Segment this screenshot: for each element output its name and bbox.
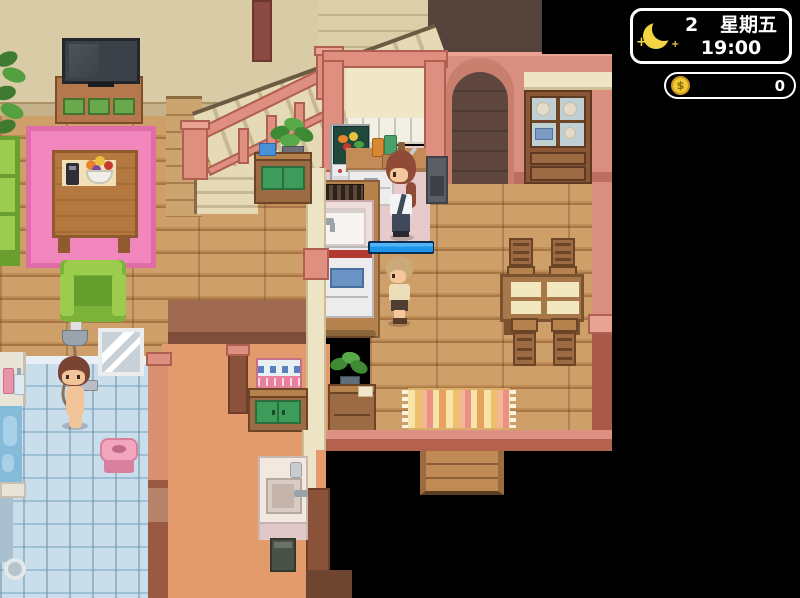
game-scene: + + 2 星期五 19:00 $ 0 <box>0 0 800 598</box>
placemat <box>547 282 579 297</box>
chair-back <box>551 238 575 266</box>
shirt <box>389 284 410 301</box>
cream-strip-salmon-block <box>303 248 329 280</box>
towel-pattern-blue <box>258 366 300 373</box>
dishes-blue <box>535 128 553 140</box>
table-shelf-line <box>334 414 370 416</box>
bathtub-rim <box>0 482 26 498</box>
cooking-progress-bar <box>368 241 434 254</box>
green-armchair[interactable] <box>60 260 126 322</box>
bathroom-wall-block <box>148 488 168 522</box>
south-wall-band <box>168 300 308 346</box>
character-mom-cooking[interactable] <box>384 148 420 242</box>
mirror[interactable] <box>98 328 144 376</box>
washbasin-vanity[interactable] <box>258 456 308 540</box>
oven-door <box>430 176 444 196</box>
soap-dispenser <box>290 462 302 478</box>
stair-post-bottom-cap <box>180 120 210 130</box>
plate <box>563 102 577 116</box>
nook-brown-pillar <box>306 488 330 572</box>
sink-basin <box>320 208 366 246</box>
door-divider <box>277 402 279 422</box>
couch-cushion <box>0 216 15 250</box>
leaf <box>0 100 26 122</box>
bathtub-side <box>0 498 13 562</box>
wall-post-cap <box>226 344 250 356</box>
crescent-moon-icon: + + <box>643 21 681 51</box>
cabinet-doors-green <box>255 400 301 424</box>
gold-coin-icon: $ <box>671 76 690 95</box>
tv-stand-drawer <box>63 98 85 115</box>
eye <box>66 375 69 379</box>
bath-stool[interactable] <box>100 438 138 474</box>
right-wall-dark-block <box>592 334 612 432</box>
veggie-orange <box>338 135 348 143</box>
floor-edge-shadow <box>326 439 612 451</box>
eye <box>392 274 395 278</box>
cream-wall-strip <box>306 168 326 450</box>
green-couch[interactable] <box>0 136 20 266</box>
stair-post-bottom <box>182 124 208 180</box>
bottle-pump <box>17 368 21 375</box>
leaf <box>0 84 17 102</box>
sparkle-icon: + <box>636 35 647 50</box>
couch-cushion <box>0 140 15 174</box>
armchair-arm <box>112 274 126 316</box>
stair-baluster <box>238 128 249 164</box>
chair-back <box>553 332 576 366</box>
leaf <box>0 65 27 86</box>
right-wall-corner-cap <box>588 314 614 334</box>
pants <box>392 214 410 232</box>
tv-screen-sheen <box>69 44 99 78</box>
rug-fringe <box>402 390 408 428</box>
water-highlight <box>3 416 17 446</box>
blue-book <box>259 143 276 156</box>
bathtub-water[interactable] <box>0 406 22 482</box>
potted-plant-corner <box>0 50 28 138</box>
towel-box <box>256 358 302 390</box>
side-table[interactable] <box>328 384 376 434</box>
shoes <box>393 318 407 324</box>
kitchen-back-wall <box>346 60 426 118</box>
dining-chair[interactable] <box>511 318 538 370</box>
couch-cushion <box>0 178 15 212</box>
chair-seat <box>511 318 538 332</box>
wall-trim-cream <box>524 72 614 90</box>
fruit <box>104 161 113 170</box>
oven-window <box>330 268 364 288</box>
tv-base <box>88 82 114 87</box>
plate <box>536 102 550 116</box>
leaf <box>348 358 369 377</box>
towel-cabinet[interactable] <box>248 388 308 432</box>
door-handle <box>282 410 285 415</box>
veggie-yellow <box>349 132 358 141</box>
cabinet-drawer-row <box>530 166 586 181</box>
sparkle-icon: + <box>671 39 679 50</box>
towel-dots <box>258 378 300 386</box>
dining-chair[interactable] <box>551 318 578 370</box>
tv-stand-drawer <box>88 98 110 115</box>
stove-top-band <box>322 250 372 258</box>
shoes <box>393 231 409 237</box>
unexplored-top-strip <box>542 0 612 54</box>
eye <box>393 172 396 177</box>
legs <box>69 412 82 428</box>
hud-weekday: 星期五 <box>720 14 777 36</box>
nook-dark-wood <box>306 570 352 598</box>
chair-back <box>509 238 533 266</box>
fruit-bowl[interactable] <box>84 156 116 188</box>
striped-rug <box>408 388 510 430</box>
floor-drain <box>4 558 26 580</box>
placemat <box>511 282 541 297</box>
wall-oven[interactable] <box>426 156 448 204</box>
soap-bottle-blue <box>14 374 25 395</box>
stove-drawer-line <box>326 296 368 298</box>
dining-table[interactable] <box>500 274 584 322</box>
basin-faucet <box>294 490 308 497</box>
hud-clock-panel: + + 2 星期五 19:00 <box>630 8 792 64</box>
arch-doorway-opening[interactable] <box>452 72 508 184</box>
hud-time: 19:00 <box>701 37 761 59</box>
table-leg <box>118 238 130 253</box>
body-shirt <box>390 194 412 216</box>
rug-fringe <box>510 390 516 428</box>
tv[interactable] <box>62 38 140 84</box>
cabinet-doors-green <box>261 166 305 190</box>
chair-back <box>513 332 536 366</box>
shampoo-bottle-pink <box>3 368 14 394</box>
cabinet-drawer-row <box>530 152 586 165</box>
door-handle <box>272 410 275 415</box>
note-paper[interactable] <box>358 386 373 397</box>
stool-hole <box>112 445 126 453</box>
sink-faucet-spout <box>330 223 335 232</box>
descending-steps[interactable] <box>420 451 504 495</box>
basin-inner <box>272 484 294 508</box>
fridge-knob-red <box>338 169 342 173</box>
bowl <box>86 170 113 184</box>
armchair-seat <box>74 276 112 306</box>
apron-strap <box>396 194 406 217</box>
cooking-progress-fill <box>370 243 433 252</box>
remote-control[interactable] <box>66 163 79 185</box>
table-leg <box>58 238 70 253</box>
china-cabinet-glass <box>530 96 586 148</box>
wall-post <box>228 354 248 414</box>
maroon-pillar <box>252 0 272 62</box>
hud-day-number: 2 <box>685 14 698 36</box>
veggie-greens <box>354 141 364 148</box>
character-child-waiting[interactable] <box>382 254 414 328</box>
leaf <box>0 117 18 136</box>
armchair-back <box>64 260 122 275</box>
kitchen-pillar-right <box>424 60 446 160</box>
eye <box>77 375 80 379</box>
china-cabinet[interactable] <box>524 90 592 184</box>
trash-bin[interactable] <box>270 538 296 572</box>
cabinet-shelf <box>532 120 584 123</box>
chair-seat <box>551 318 578 332</box>
remote-buttons <box>69 166 76 170</box>
hud-money-amount: 0 <box>690 77 785 95</box>
cabinet-top <box>248 388 308 398</box>
plate <box>564 127 576 139</box>
armchair-arm <box>60 274 74 316</box>
bathroom-wall-cap <box>146 352 172 366</box>
tv-stand-drawer <box>113 98 135 115</box>
hud-money-panel: $ 0 <box>664 72 796 99</box>
placemat <box>547 301 579 314</box>
floor-edge-highlight <box>326 430 612 439</box>
trash-lid <box>274 542 292 548</box>
door-divider <box>282 168 284 188</box>
placemat <box>511 301 541 314</box>
understairs-cabinet[interactable] <box>254 152 312 204</box>
water-highlight <box>2 454 14 472</box>
character-woman-showering[interactable] <box>54 354 94 432</box>
bathroom-wall-upper <box>148 366 168 480</box>
